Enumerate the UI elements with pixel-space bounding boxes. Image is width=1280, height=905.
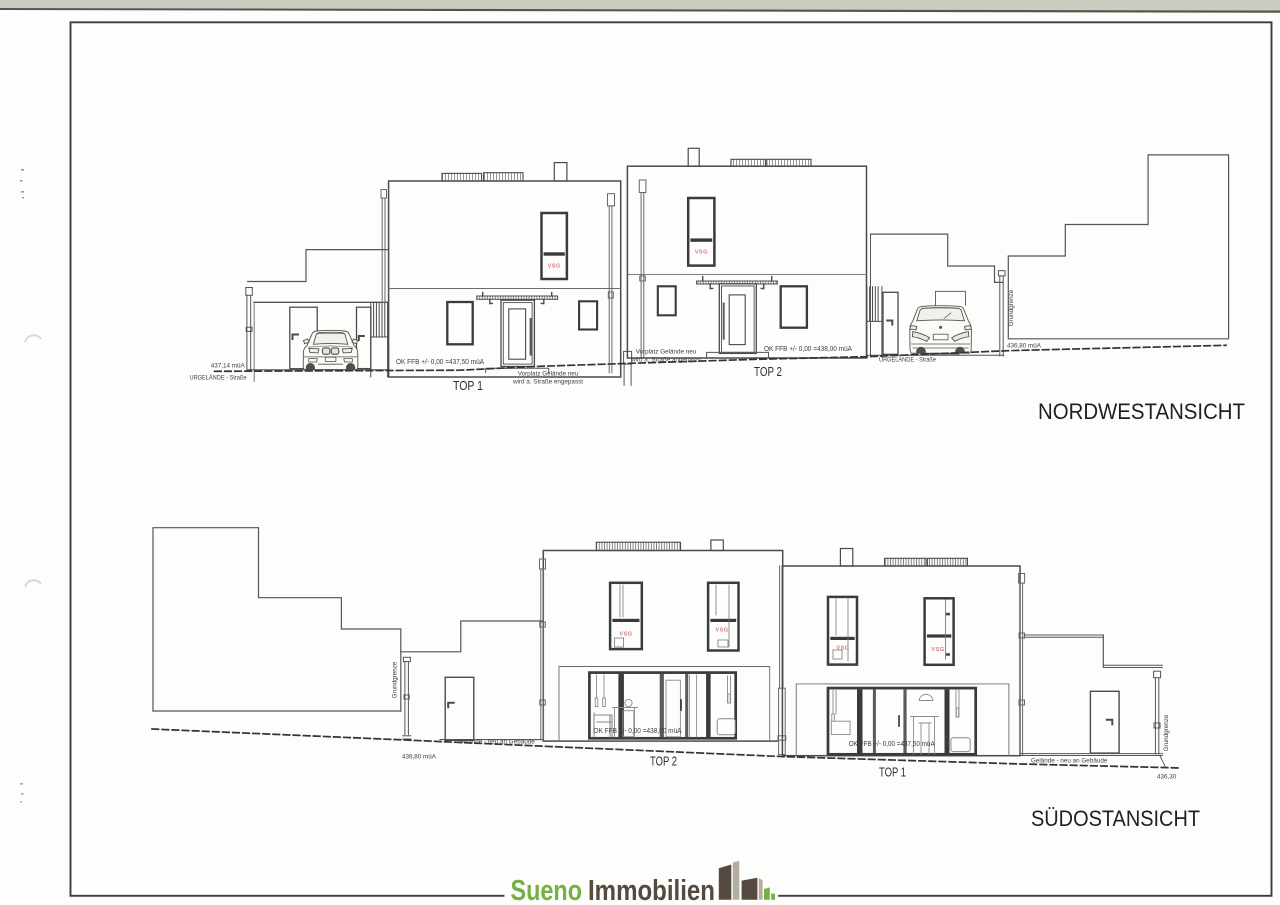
- svg-text:VSG: VSG: [931, 647, 944, 653]
- svg-text:VSG: VSG: [836, 646, 849, 652]
- svg-text:Grundgrenze: Grundgrenze: [1008, 289, 1015, 326]
- svg-text:TOP 1: TOP 1: [453, 378, 483, 393]
- svg-text:OK FFB +/- 0,00 =438,00 müA: OK FFB +/- 0,00 =438,00 müA: [764, 346, 852, 353]
- svg-text:SÜDOSTANSICHT: SÜDOSTANSICHT: [1031, 806, 1200, 831]
- svg-text:Vorplatz Gelände neu: Vorplatz Gelände neu: [636, 349, 697, 356]
- svg-text:OK FFB +/- 0,00 =437,50 müA: OK FFB +/- 0,00 =437,50 müA: [396, 359, 484, 366]
- svg-text:436,80 müA: 436,80 müA: [402, 754, 437, 761]
- svg-text:wird a. Straße engepasst: wird a. Straße engepasst: [512, 379, 583, 386]
- svg-text:VSG: VSG: [548, 264, 561, 270]
- svg-text:TOP 2: TOP 2: [650, 754, 677, 769]
- svg-text:TOP 2: TOP 2: [754, 364, 782, 379]
- svg-text:URGELÄNDE - Straße: URGELÄNDE - Straße: [879, 356, 936, 364]
- svg-text:Gelände - neu an Gebäude: Gelände - neu an Gebäude: [1031, 758, 1108, 765]
- svg-text:VSG: VSG: [619, 632, 632, 638]
- svg-text:URGELÄNDE - Straße: URGELÄNDE - Straße: [190, 373, 247, 381]
- svg-text:Grundgrenze: Grundgrenze: [392, 661, 399, 698]
- svg-text:TOP 1: TOP 1: [879, 765, 906, 780]
- svg-text:Sueno: Sueno: [511, 875, 583, 905]
- svg-text:VSG: VSG: [695, 250, 708, 256]
- svg-text:OK FFB +/- 0,00 =437,50 müA: OK FFB +/- 0,00 =437,50 müA: [849, 741, 935, 748]
- svg-text:Vorplatz Gelände neu: Vorplatz Gelände neu: [518, 371, 579, 378]
- svg-text:436,30: 436,30: [1157, 774, 1177, 781]
- svg-text:wird a. Straße angepasst: wird a. Straße angepasst: [630, 356, 701, 363]
- svg-text:Grundgrenze: Grundgrenze: [1163, 714, 1170, 751]
- svg-text:Immobilien: Immobilien: [588, 875, 715, 905]
- svg-text:OK FFB +/- 0,00 =438,00 müA: OK FFB +/- 0,00 =438,00 müA: [594, 728, 682, 735]
- svg-text:436,80 müA: 436,80 müA: [1007, 343, 1042, 350]
- svg-text:VSG: VSG: [715, 628, 728, 634]
- svg-text:NORDWESTANSICHT: NORDWESTANSICHT: [1038, 399, 1245, 424]
- svg-text:437,14 müA: 437,14 müA: [211, 363, 246, 370]
